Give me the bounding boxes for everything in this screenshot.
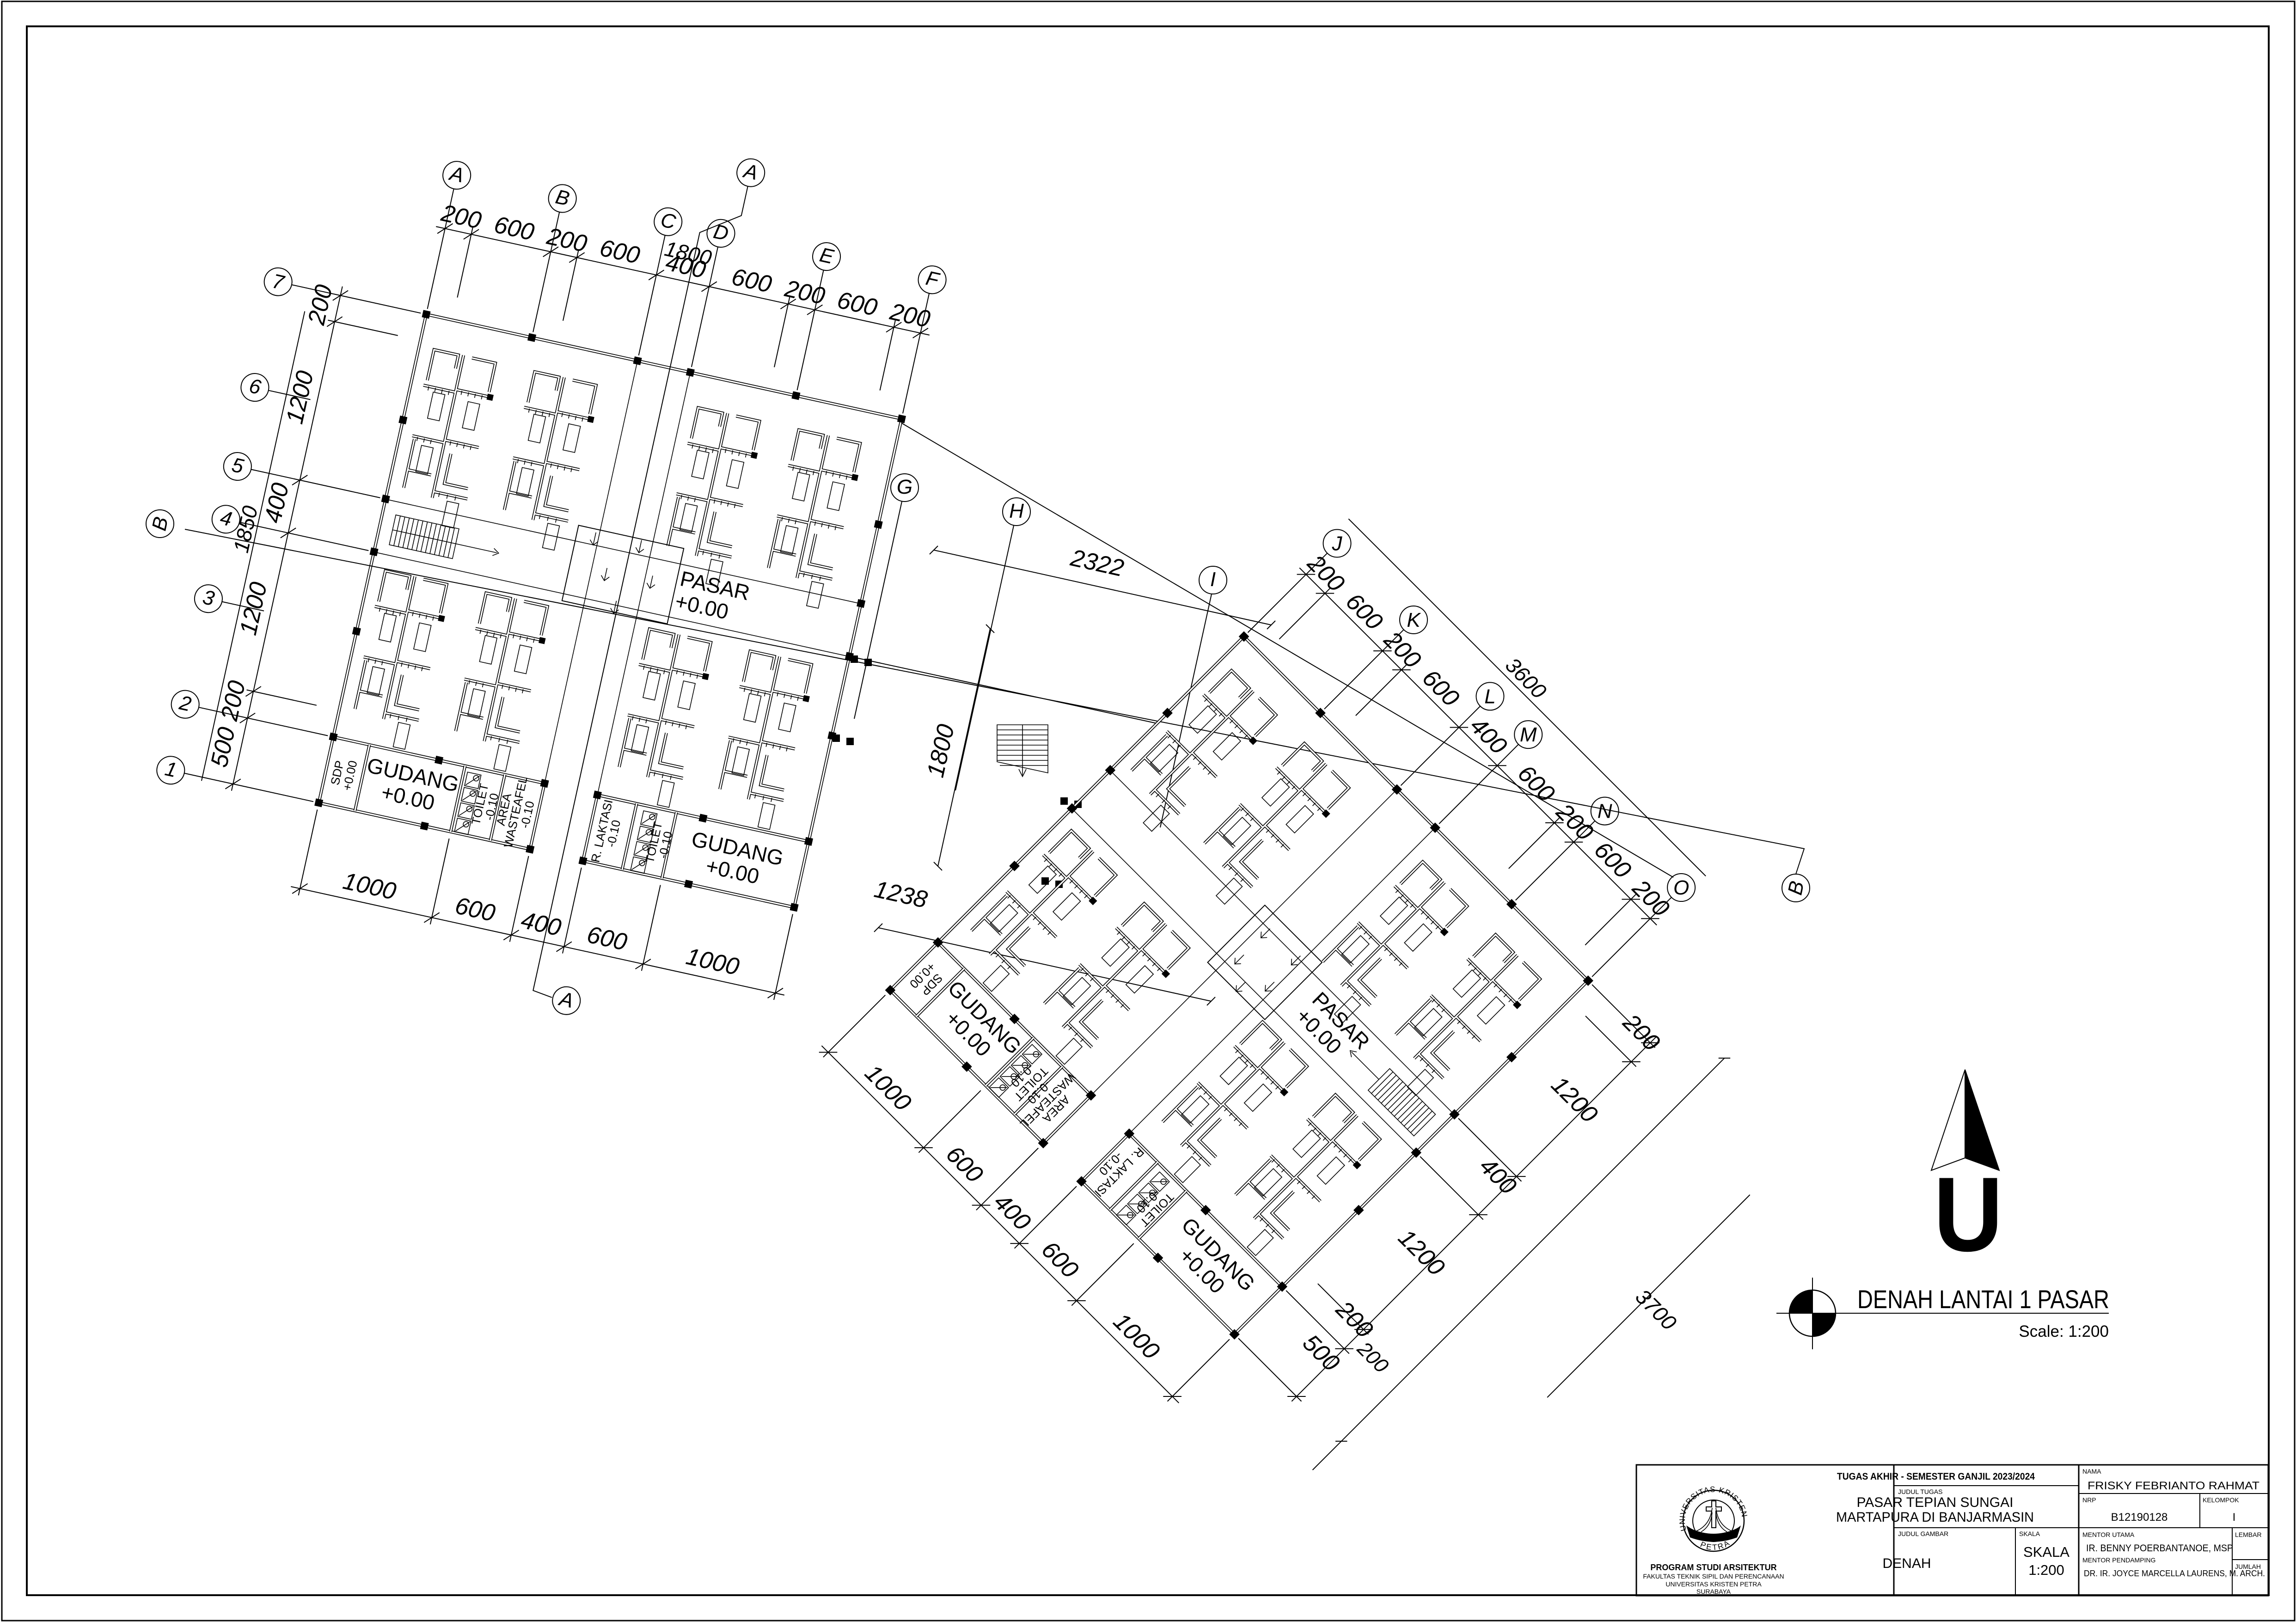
svg-text:SKALA: SKALA [2023, 1544, 2069, 1560]
svg-text:LEMBAR: LEMBAR [2235, 1531, 2262, 1538]
svg-text:JUDUL GAMBAR: JUDUL GAMBAR [1898, 1530, 1948, 1537]
svg-text:SURABAYA: SURABAYA [1696, 1588, 1731, 1595]
svg-text:Scale: 1:200: Scale: 1:200 [2019, 1322, 2109, 1340]
svg-text:G: G [897, 476, 912, 498]
svg-text:DENAH: DENAH [1882, 1556, 1931, 1571]
svg-text:FRISKY FEBRIANTO RAHMAT: FRISKY FEBRIANTO RAHMAT [2088, 1480, 2259, 1492]
svg-text:DENAH LANTAI 1 PASAR: DENAH LANTAI 1 PASAR [1857, 1285, 2109, 1314]
svg-text:FAKULTAS TEKNIK SIPIL DAN PERE: FAKULTAS TEKNIK SIPIL DAN PERENCANAAN [1643, 1573, 1784, 1580]
svg-text:DR. IR. JOYCE MARCELLA LAURENS: DR. IR. JOYCE MARCELLA LAURENS, M. ARCH. [2084, 1569, 2265, 1578]
svg-text:1:200: 1:200 [2028, 1562, 2064, 1578]
svg-text:I: I [2233, 1511, 2236, 1524]
svg-text:KELOMPOK: KELOMPOK [2203, 1496, 2239, 1504]
svg-text:SKALA: SKALA [2019, 1530, 2040, 1537]
svg-text:U: U [1934, 1155, 2003, 1273]
svg-text:MENTOR UTAMA: MENTOR UTAMA [2082, 1531, 2135, 1538]
svg-text:NRP: NRP [2082, 1496, 2096, 1504]
svg-text:UNIVERSITAS KRISTEN PETRA: UNIVERSITAS KRISTEN PETRA [1665, 1580, 1762, 1588]
svg-text:O: O [1673, 876, 1689, 899]
svg-text:MENTOR PENDAMPING: MENTOR PENDAMPING [2082, 1556, 2155, 1564]
svg-text:MARTAPURA DI BANJARMASIN: MARTAPURA DI BANJARMASIN [1836, 1510, 2034, 1525]
svg-text:JUMLAH: JUMLAH [2235, 1563, 2261, 1570]
svg-text:M: M [1520, 723, 1537, 746]
svg-text:TUGAS AKHIR - SEMESTER GANJIL: TUGAS AKHIR - SEMESTER GANJIL 2023/2024 [1837, 1471, 2035, 1482]
svg-text:JUDUL TUGAS: JUDUL TUGAS [1898, 1488, 1942, 1495]
svg-text:L: L [1484, 685, 1495, 708]
svg-text:IR. BENNY POERBANTANOE, MSP: IR. BENNY POERBANTANOE, MSP [2086, 1543, 2233, 1554]
svg-text:H: H [1009, 500, 1024, 522]
svg-text:I: I [1210, 568, 1216, 591]
svg-text:NAMA: NAMA [2082, 1468, 2101, 1475]
svg-text:N: N [1598, 800, 1612, 823]
svg-text:PROGRAM STUDI ARSITEKTUR: PROGRAM STUDI ARSITEKTUR [1650, 1563, 1776, 1572]
svg-text:PASAR TEPIAN SUNGAI: PASAR TEPIAN SUNGAI [1857, 1495, 2014, 1510]
svg-text:B12190128: B12190128 [2111, 1511, 2168, 1524]
svg-text:K: K [1407, 609, 1421, 631]
svg-text:J: J [1332, 532, 1343, 555]
